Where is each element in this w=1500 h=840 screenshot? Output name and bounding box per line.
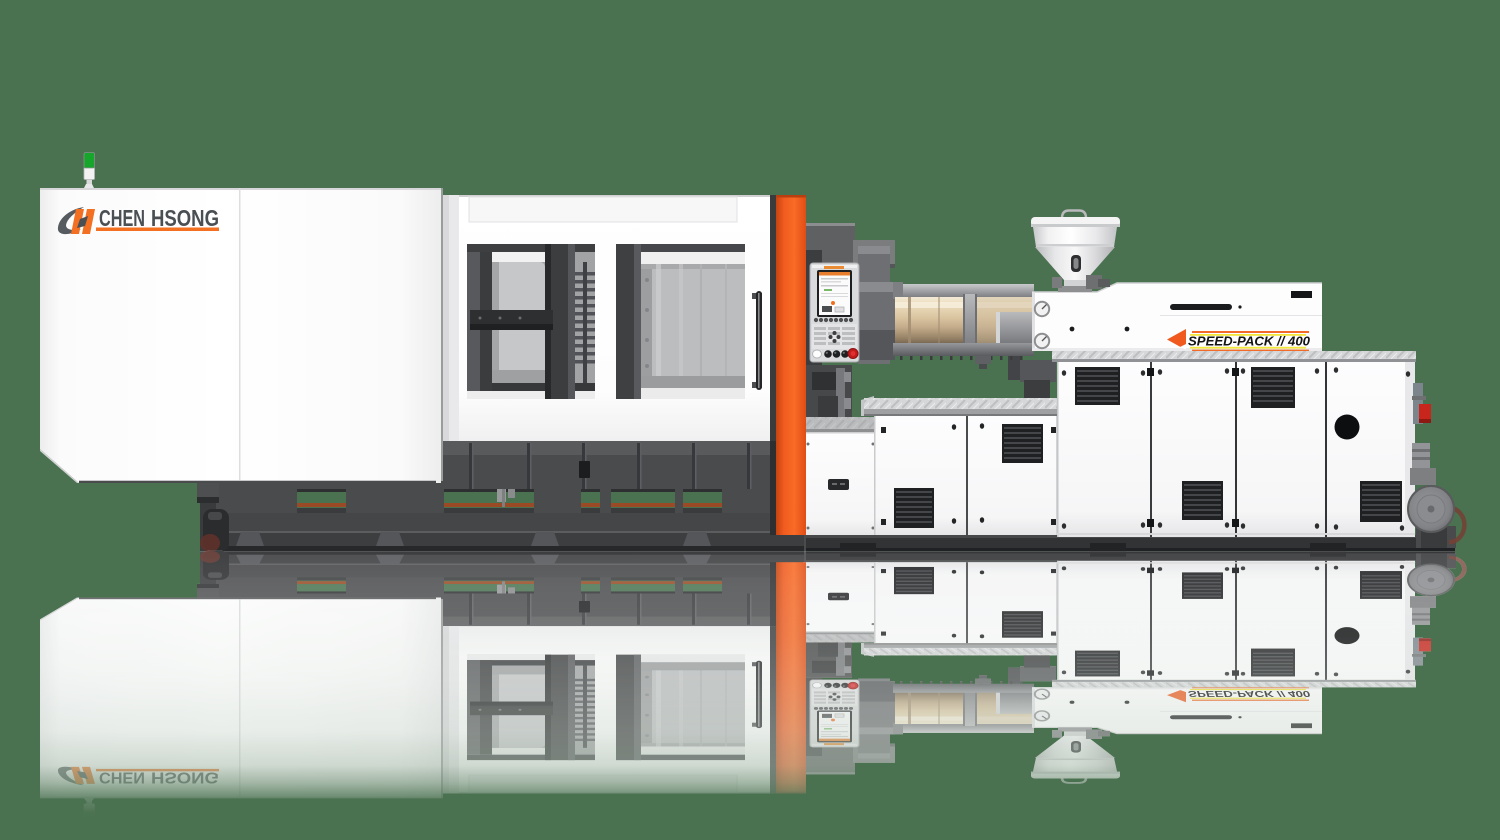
svg-text:SPEED-PACK // 400: SPEED-PACK // 400 (1188, 335, 1310, 349)
svg-text:HSONG: HSONG (151, 205, 219, 231)
svg-text:CHEN: CHEN (99, 205, 145, 231)
